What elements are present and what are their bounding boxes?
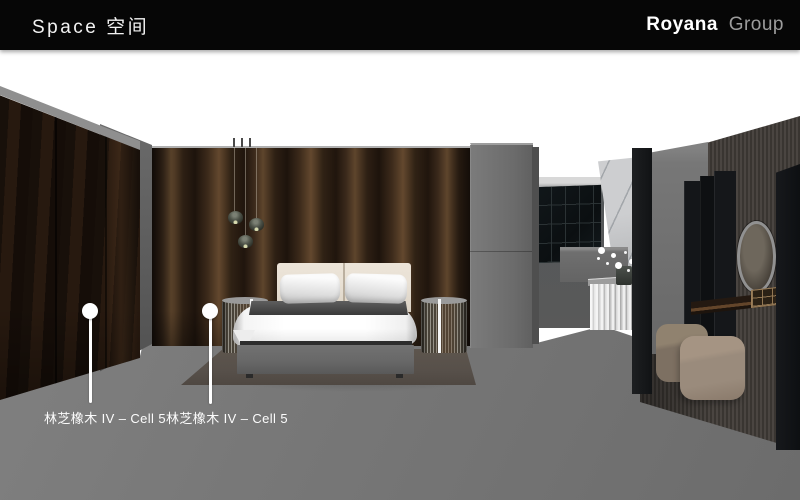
pendant-lamp	[238, 235, 253, 248]
lamp-ceiling-mount	[241, 138, 243, 147]
nightstand-right-stripe	[438, 299, 441, 353]
tall-cabinet-right	[776, 164, 800, 450]
callout-pin-line	[89, 316, 92, 403]
bed-foot	[396, 374, 403, 378]
nightstand-right	[421, 300, 467, 353]
brand-secondary: Group	[729, 14, 784, 35]
wardrobe-door-seam	[55, 86, 57, 400]
callout-pin-icon	[202, 303, 218, 319]
console-table-legs	[590, 284, 635, 330]
gray-column	[470, 143, 533, 348]
bed-base	[237, 345, 414, 374]
pendant-lamp	[249, 218, 264, 231]
brand-logo: Royana Group	[646, 14, 784, 36]
tall-cabinet-left	[632, 148, 652, 394]
orchid-flowers	[598, 247, 605, 254]
lamp-ceiling-mount	[233, 138, 235, 147]
lamp-cord	[256, 147, 257, 219]
callout-pin-line	[209, 316, 212, 404]
lamp-cord	[245, 147, 246, 236]
nightstand-right-top	[421, 297, 467, 304]
left-wardrobe	[0, 86, 140, 400]
room-render: 林芝橡木 IV – Cell 5 林芝橡木 IV – Cell 5	[0, 0, 800, 500]
flower-vase	[616, 266, 632, 285]
brand-primary: Royana	[646, 14, 718, 35]
lamp-cord	[234, 147, 235, 212]
ottoman	[680, 336, 745, 400]
material-callout-label: 林芝橡木 IV – Cell 5	[166, 408, 288, 427]
pendant-lamp	[228, 211, 243, 224]
vanity-mirror	[737, 221, 776, 293]
gray-column-side	[532, 147, 539, 344]
header-bar: Space 空间 Royana Group	[0, 0, 800, 50]
page-title: Space 空间	[32, 12, 149, 39]
gray-column-seam	[470, 251, 532, 252]
callout-pin-icon	[82, 303, 98, 319]
pillow-left	[280, 273, 341, 304]
bed-foot	[246, 374, 253, 378]
lamp-ceiling-mount	[249, 138, 251, 147]
pillow-right	[345, 273, 408, 304]
material-callout-label: 林芝橡木 IV – Cell 5	[44, 408, 166, 427]
